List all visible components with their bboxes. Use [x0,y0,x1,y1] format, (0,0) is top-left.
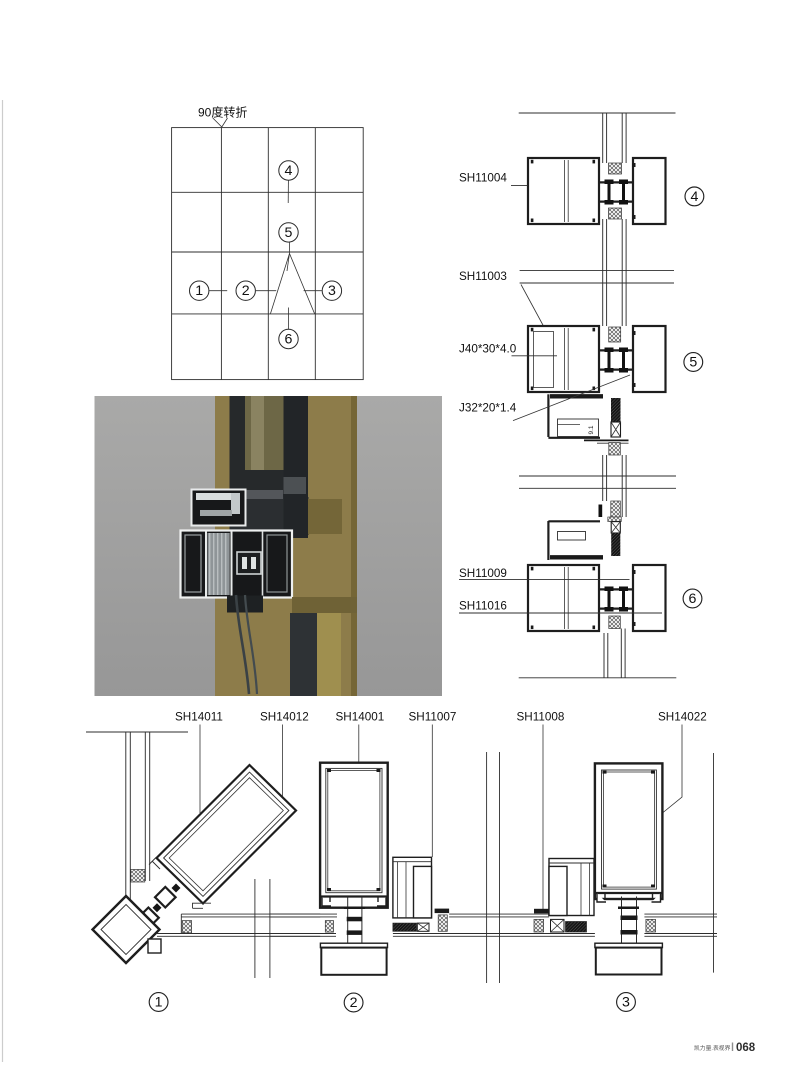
svg-text:3: 3 [622,995,630,1011]
svg-text:SH11016: SH11016 [459,600,507,613]
svg-text:SH14011: SH14011 [175,711,223,724]
svg-text:1: 1 [195,283,203,299]
svg-text:SH11009: SH11009 [459,567,507,580]
svg-text:5: 5 [285,225,293,241]
svg-text:SH11003: SH11003 [459,270,507,283]
svg-text:1: 1 [155,995,163,1011]
svg-text:3: 3 [328,283,336,299]
svg-text:SH14012: SH14012 [260,711,309,724]
svg-text:9.1: 9.1 [588,425,595,434]
svg-text:4: 4 [690,189,698,205]
svg-text:6: 6 [285,332,293,348]
svg-text:J32*20*1.4: J32*20*1.4 [459,402,517,415]
svg-text:SH14001: SH14001 [336,711,385,724]
svg-text:2: 2 [350,995,358,1011]
svg-text:068: 068 [736,1042,756,1054]
svg-text:5: 5 [689,355,697,371]
svg-text:J40*30*4.0: J40*30*4.0 [459,343,517,356]
svg-text:6: 6 [689,591,697,607]
svg-text:2: 2 [242,283,250,299]
svg-text:凯力量.表视界: 凯力量.表视界 [694,1044,731,1052]
svg-text:90度转折: 90度转折 [198,105,247,120]
svg-text:SH11004: SH11004 [459,172,507,185]
svg-text:4: 4 [285,163,293,179]
svg-text:SH11008: SH11008 [517,711,565,724]
svg-text:SH11007: SH11007 [409,711,457,724]
svg-text:SH14022: SH14022 [658,711,707,724]
